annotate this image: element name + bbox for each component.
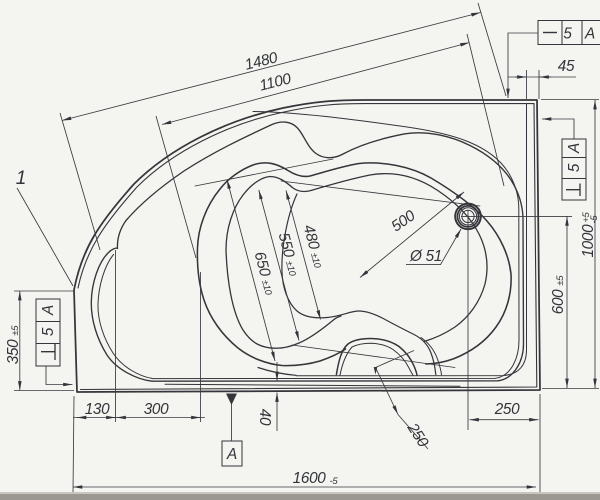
svg-text:Ø 51: Ø 51 <box>409 248 442 265</box>
svg-text:1: 1 <box>16 168 27 189</box>
svg-text:A: A <box>226 446 237 463</box>
svg-text:130: 130 <box>85 401 110 418</box>
svg-text:250: 250 <box>494 401 520 418</box>
svg-text:A: A <box>40 305 57 316</box>
svg-text:40: 40 <box>256 409 273 426</box>
svg-text:5: 5 <box>40 327 57 336</box>
svg-text:5: 5 <box>563 26 572 43</box>
svg-text:A: A <box>584 26 595 43</box>
svg-text:45: 45 <box>558 58 575 75</box>
svg-text:300: 300 <box>144 401 169 418</box>
svg-text:A: A <box>566 143 583 154</box>
svg-text:5: 5 <box>566 163 583 172</box>
